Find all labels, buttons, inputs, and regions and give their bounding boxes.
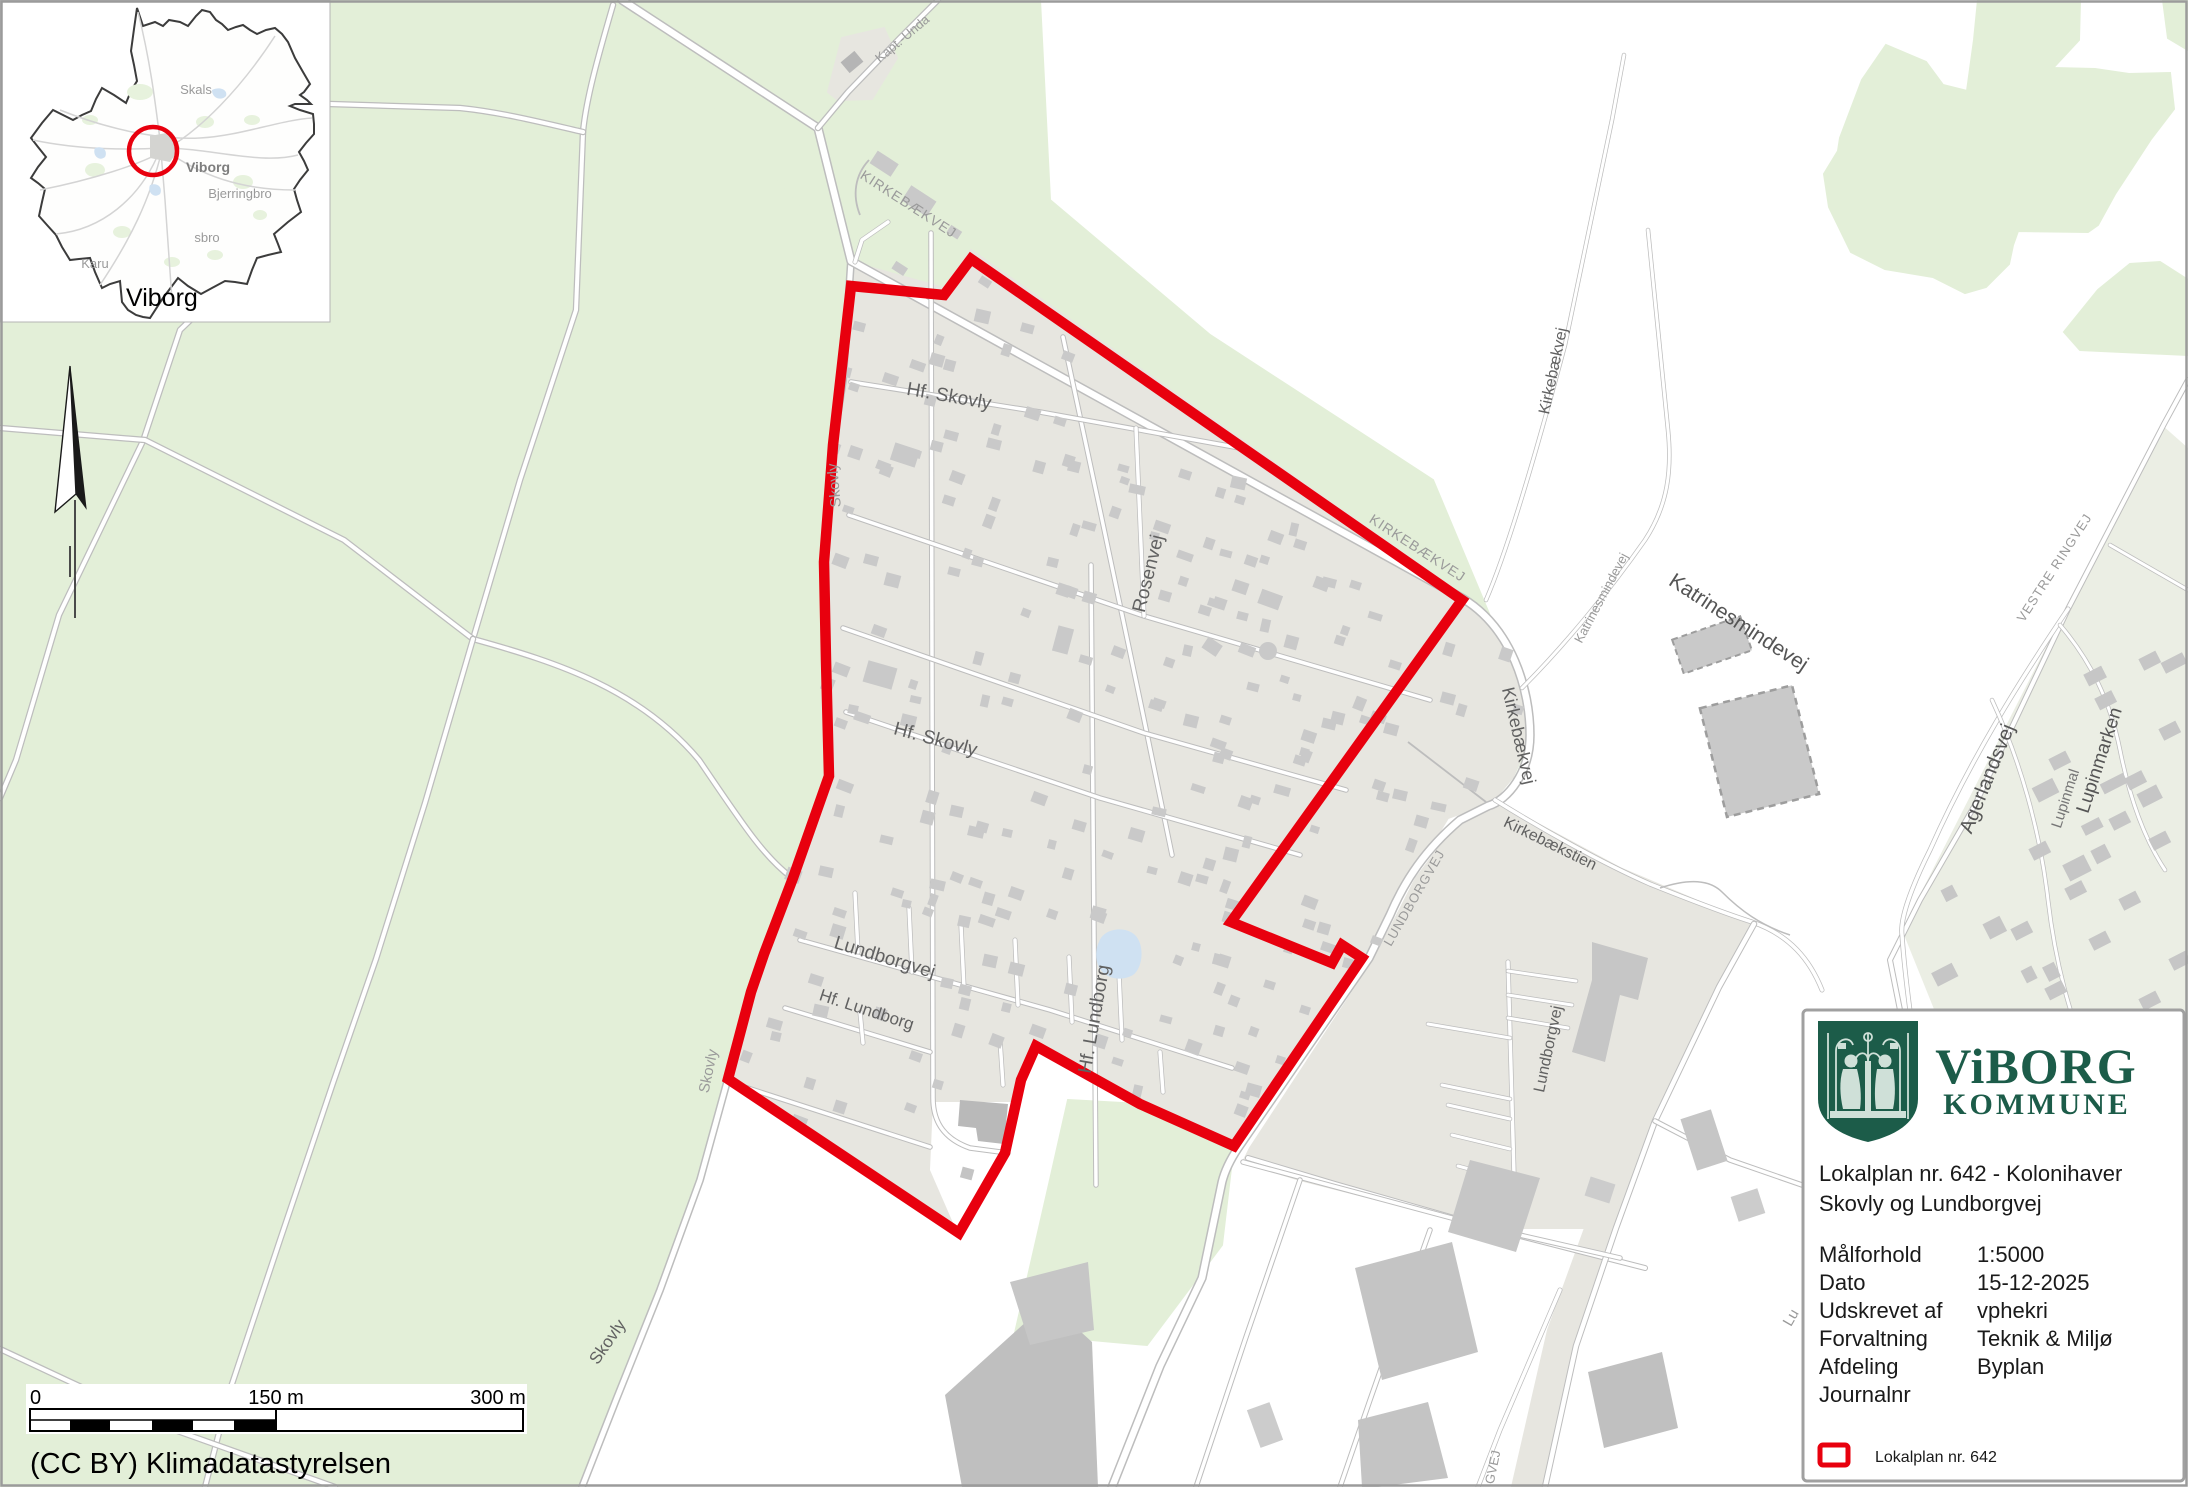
svg-text:150 m: 150 m <box>248 1387 304 1409</box>
svg-text:Dato: Dato <box>1819 1270 1865 1295</box>
svg-text:15-12-2025: 15-12-2025 <box>1977 1270 2090 1295</box>
svg-text:vphekri: vphekri <box>1977 1298 2048 1323</box>
svg-text:Viborg: Viborg <box>186 159 230 175</box>
svg-text:Afdeling: Afdeling <box>1819 1354 1899 1379</box>
svg-text:0: 0 <box>30 1387 41 1409</box>
svg-text:Udskrevet af: Udskrevet af <box>1819 1298 1943 1323</box>
svg-text:Skals: Skals <box>180 82 212 97</box>
svg-text:Lokalplan nr. 642: Lokalplan nr. 642 <box>1875 1449 1997 1466</box>
svg-text:Forvaltning: Forvaltning <box>1819 1326 1928 1351</box>
svg-text:Skovly og Lundborgvej: Skovly og Lundborgvej <box>1819 1191 2042 1216</box>
svg-text:KOMMUNE: KOMMUNE <box>1943 1088 2131 1121</box>
svg-text:300 m: 300 m <box>470 1387 526 1409</box>
svg-text:Lokalplan nr. 642 - Kolonihave: Lokalplan nr. 642 - Kolonihaver <box>1819 1161 2122 1186</box>
svg-text:1:5000: 1:5000 <box>1977 1242 2044 1267</box>
svg-text:Bjerringbro: Bjerringbro <box>208 186 272 201</box>
svg-text:Viborg: Viborg <box>126 284 198 312</box>
svg-text:Målforhold: Målforhold <box>1819 1242 1922 1267</box>
svg-text:(CC BY) Klimadatastyrelsen: (CC BY) Klimadatastyrelsen <box>30 1448 391 1480</box>
svg-text:sbro: sbro <box>194 230 219 245</box>
svg-text:Journalnr: Journalnr <box>1819 1382 1911 1407</box>
svg-text:ViBORG: ViBORG <box>1935 1038 2136 1094</box>
svg-text:Karu: Karu <box>81 256 108 271</box>
svg-text:Teknik & Miljø: Teknik & Miljø <box>1977 1326 2113 1351</box>
svg-text:Byplan: Byplan <box>1977 1354 2044 1379</box>
